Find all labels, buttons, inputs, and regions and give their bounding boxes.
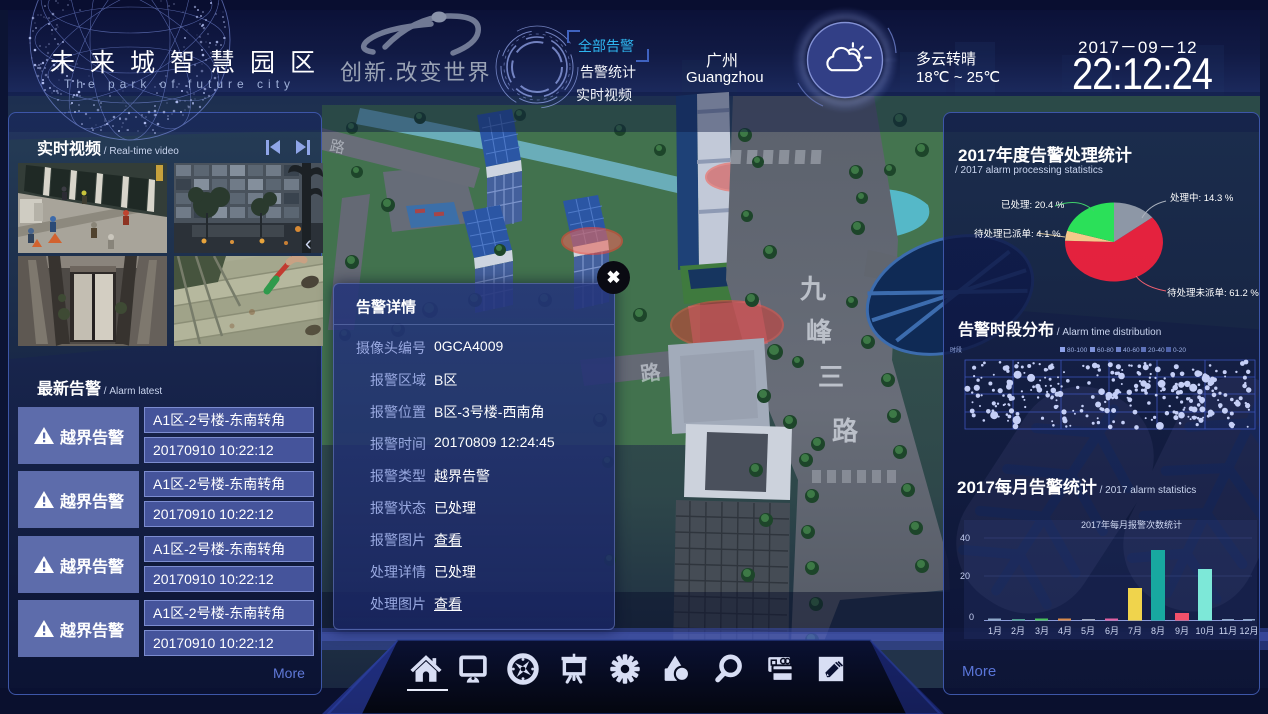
svg-text:九: 九 (799, 274, 826, 304)
svg-text:已处理: 20.4 %: 已处理: 20.4 % (1001, 199, 1065, 211)
svg-text:0-20: 0-20 (1173, 347, 1186, 354)
svg-text:路: 路 (832, 416, 859, 446)
svg-text:时段: 时段 (950, 346, 962, 354)
svg-text:峰: 峰 (806, 317, 832, 347)
svg-text:待处理未派单: 61.2 %: 待处理未派单: 61.2 % (1167, 287, 1259, 299)
svg-text:20-40: 20-40 (1148, 347, 1165, 354)
svg-text:40: 40 (960, 533, 970, 543)
svg-text:处理中: 14.3 %: 处理中: 14.3 % (1170, 192, 1234, 204)
svg-text:60-80: 60-80 (1097, 347, 1114, 354)
svg-text:三: 三 (818, 362, 844, 392)
svg-text:40-60: 40-60 (1123, 347, 1140, 354)
svg-text:待处理已派单: 4.1 %: 待处理已派单: 4.1 % (974, 228, 1061, 240)
svg-text:0: 0 (969, 612, 974, 622)
svg-text:20: 20 (960, 571, 970, 581)
svg-text:2017年每月报警次数统计: 2017年每月报警次数统计 (1081, 519, 1182, 530)
svg-text:80-100: 80-100 (1067, 347, 1088, 354)
